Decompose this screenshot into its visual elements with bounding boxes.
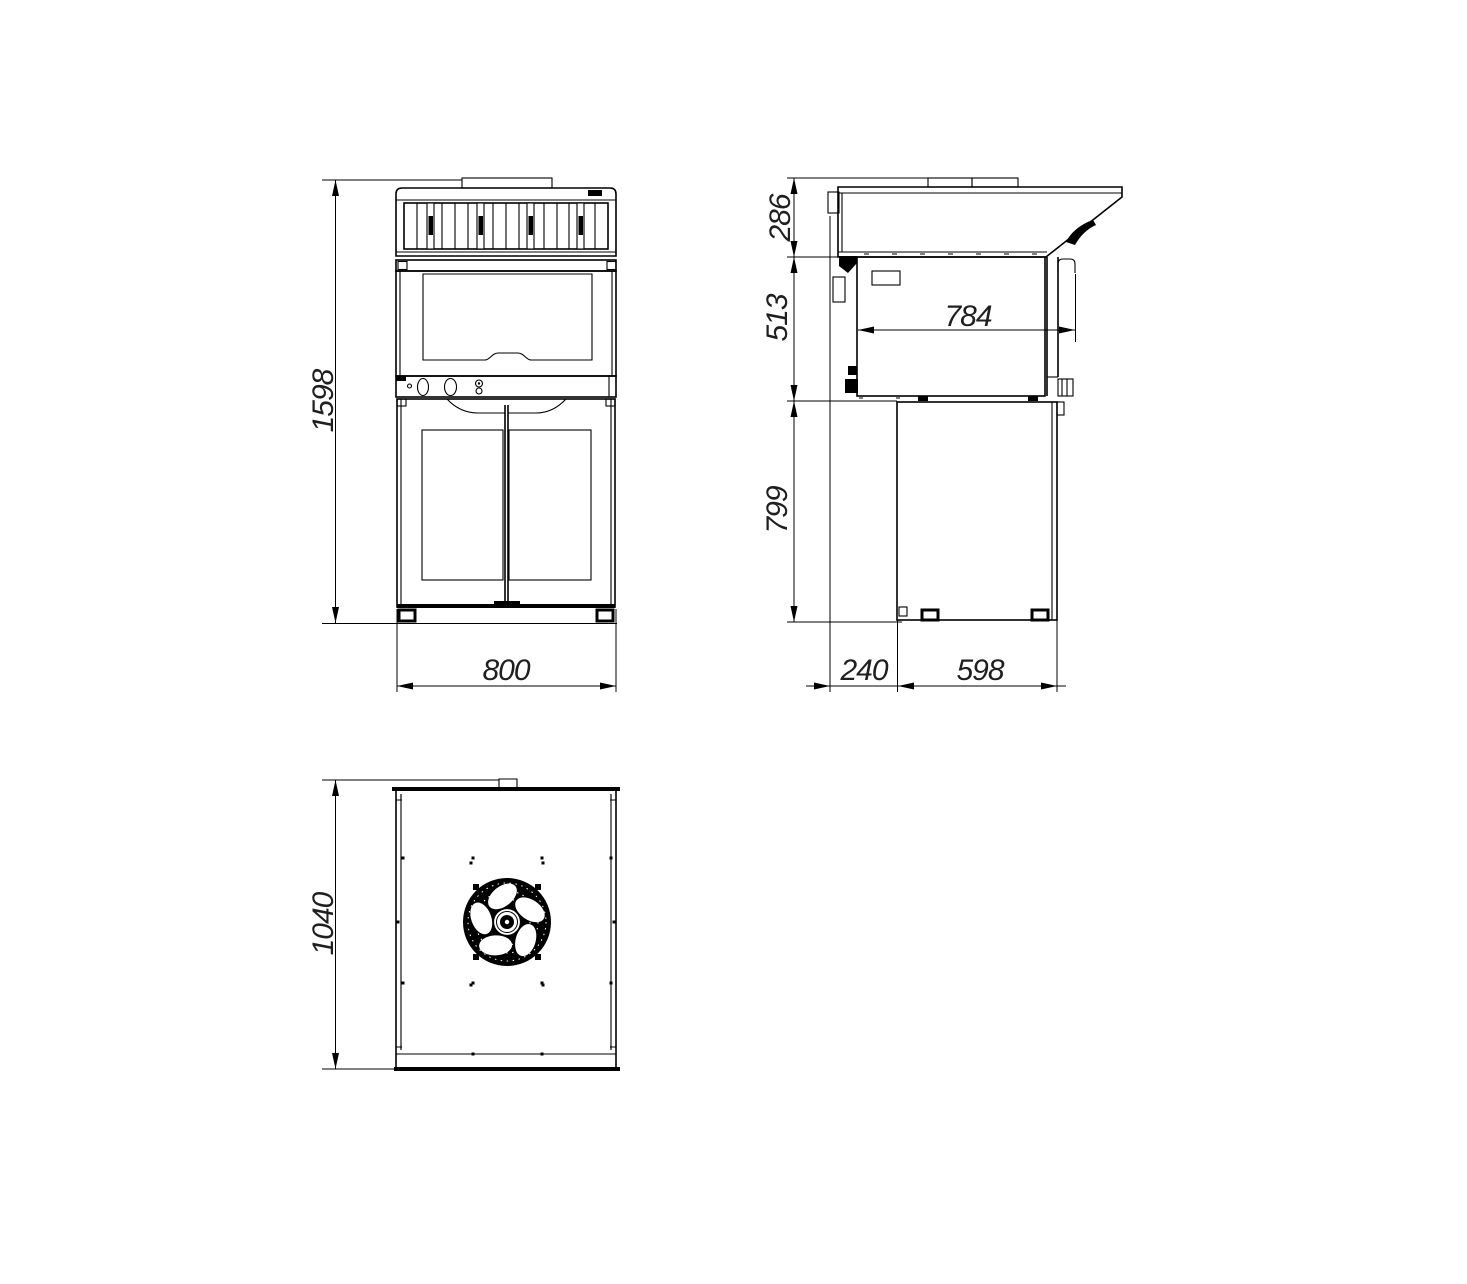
brand-plate	[588, 190, 602, 196]
control-knob-2	[445, 379, 457, 396]
side-view	[828, 178, 1122, 620]
front-view	[396, 178, 616, 621]
front-shelf-bar	[396, 260, 616, 271]
cabinet-right-door-panel	[509, 430, 591, 580]
front-feet	[399, 610, 613, 621]
top-rear-edge	[394, 1067, 620, 1071]
hood-grille	[404, 203, 608, 249]
front-oven-door	[396, 271, 616, 376]
dim-front-overall-height: 1598	[307, 180, 462, 623]
dim-front-overall-width: 800	[322, 609, 617, 692]
dim-label-stand-depth: 598	[956, 654, 1004, 687]
side-hood	[828, 187, 1122, 273]
front-chimney	[462, 178, 552, 188]
dim-label-overall-width: 800	[482, 654, 530, 687]
ventilation-fan	[462, 877, 553, 969]
fan-hub	[494, 909, 521, 936]
side-stand	[897, 402, 1064, 620]
dim-label-hood-height: 286	[764, 193, 797, 242]
top-view	[392, 779, 620, 1071]
cabinet-handle-recess	[447, 399, 566, 413]
cabinet-left-door-panel	[422, 430, 503, 580]
dim-label-oven-body-height: 513	[761, 293, 794, 341]
hood-corner-gusset	[839, 256, 857, 273]
dim-label-body-depth: 784	[944, 300, 991, 333]
top-front-edge	[392, 787, 620, 791]
dim-label-rear-clearance: 240	[839, 654, 888, 687]
control-knob-1	[418, 379, 429, 396]
oven-dimension-drawing: 1598 800 286 513 799	[0, 0, 1467, 1284]
rating-plate	[872, 271, 900, 285]
front-cabinet	[397, 399, 615, 608]
control-button-bottom	[476, 388, 482, 394]
dimensions: 1598 800 286 513 799	[307, 178, 1076, 1069]
door-handle	[1058, 259, 1075, 273]
stand-foot	[1032, 610, 1048, 620]
stand-foot	[922, 610, 938, 620]
front-control-panel	[396, 376, 616, 397]
dim-label-stand-height: 799	[761, 485, 794, 533]
door-latch	[1058, 379, 1073, 396]
hood-handle	[1066, 220, 1096, 245]
dim-label-overall-height: 1598	[307, 368, 340, 432]
dim-side-body-depth: 784	[858, 274, 1076, 342]
dim-label-overall-depth: 1040	[307, 891, 340, 955]
side-oven-door-edge	[1047, 257, 1075, 396]
technical-drawing-canvas: 1598 800 286 513 799	[0, 0, 1467, 1284]
side-chimney	[928, 178, 972, 187]
oven-door-window	[423, 274, 592, 360]
indicator-light	[408, 384, 412, 388]
rear-hinge-box	[833, 277, 845, 302]
front-hood	[396, 188, 616, 256]
dim-side-heights: 286 513 799	[761, 178, 928, 622]
